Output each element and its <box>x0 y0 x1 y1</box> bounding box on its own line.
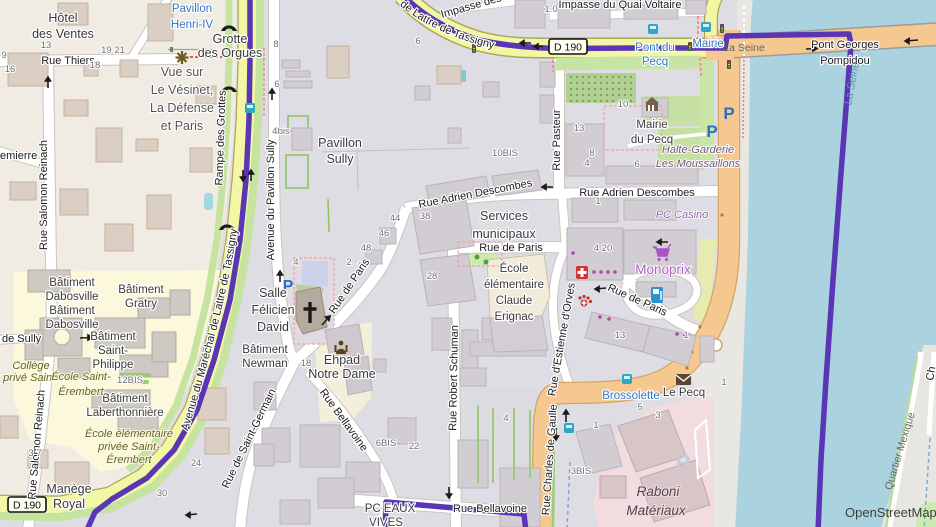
svg-text:D 190: D 190 <box>554 42 582 54</box>
svg-text:8: 8 <box>273 39 278 50</box>
svg-text:Philippe: Philippe <box>93 359 134 371</box>
svg-text:Rue Bellavoine: Rue Bellavoine <box>453 503 527 515</box>
svg-text:Services: Services <box>480 209 528 223</box>
svg-text:Bâtiment: Bâtiment <box>242 344 288 356</box>
svg-text:Notre Dame: Notre Dame <box>308 367 375 381</box>
svg-text:et Paris: et Paris <box>161 119 203 133</box>
svg-text:Laberthonnière: Laberthonnière <box>86 407 163 419</box>
svg-text:Ehpad: Ehpad <box>324 353 360 367</box>
svg-text:PC Casino: PC Casino <box>656 209 709 221</box>
svg-text:4: 4 <box>584 158 589 169</box>
svg-text:Collège: Collège <box>12 360 49 372</box>
svg-text:David: David <box>257 320 289 334</box>
svg-text:Le Pecq: Le Pecq <box>663 387 705 399</box>
svg-text:Rue Robert Schuman: Rue Robert Schuman <box>447 325 461 431</box>
svg-text:Claude: Claude <box>496 295 532 307</box>
svg-text:D 190: D 190 <box>13 500 41 512</box>
svg-text:de Sully: de Sully <box>2 333 42 345</box>
svg-text:Matériaux: Matériaux <box>626 503 687 518</box>
svg-text:Rue Pasteur: Rue Pasteur <box>551 109 563 170</box>
svg-text:38: 38 <box>420 211 431 222</box>
svg-text:VIVES: VIVES <box>369 517 403 527</box>
svg-text:Pavillon: Pavillon <box>172 3 212 15</box>
svg-text:13: 13 <box>574 123 585 134</box>
svg-text:46: 46 <box>379 228 390 239</box>
svg-text:Hôtel: Hôtel <box>48 11 77 25</box>
svg-text:Pont Georges: Pont Georges <box>811 39 879 51</box>
svg-text:10BIS: 10BIS <box>492 148 518 159</box>
svg-text:4: 4 <box>293 257 298 268</box>
svg-text:3BIS: 3BIS <box>571 466 592 477</box>
svg-text:Pecq: Pecq <box>642 56 668 68</box>
svg-text:4: 4 <box>503 413 508 424</box>
svg-text:1: 1 <box>683 330 688 341</box>
svg-text:8: 8 <box>589 148 594 159</box>
svg-text:Newman: Newman <box>242 358 287 370</box>
svg-text:Manège: Manège <box>46 482 91 496</box>
svg-text:Monoprix: Monoprix <box>635 262 691 277</box>
svg-text:Sully: Sully <box>326 152 354 166</box>
svg-text:4 20: 4 20 <box>594 243 613 254</box>
svg-text:des Ventes: des Ventes <box>32 27 94 41</box>
svg-text:Bâtiment: Bâtiment <box>102 393 148 405</box>
svg-text:Raboni: Raboni <box>637 484 681 499</box>
svg-text:6: 6 <box>634 159 639 170</box>
svg-text:10: 10 <box>618 99 629 110</box>
svg-text:École Saint-: École Saint- <box>51 370 111 383</box>
svg-text:Érembert: Érembert <box>106 453 152 466</box>
svg-text:Avenue du Pavillon Sully: Avenue du Pavillon Sully <box>265 139 277 260</box>
svg-text:18: 18 <box>301 358 312 369</box>
svg-text:Pavillon: Pavillon <box>318 136 362 150</box>
svg-text:1: 1 <box>593 420 598 431</box>
svg-text:Impasse du Quai Voltaire: Impasse du Quai Voltaire <box>559 0 682 11</box>
svg-text:Rue Thiers: Rue Thiers <box>41 55 95 67</box>
svg-text:Rue Salomon Reinach: Rue Salomon Reinach <box>38 140 50 250</box>
svg-text:1: 1 <box>595 196 600 207</box>
svg-text:13: 13 <box>615 330 626 341</box>
svg-text:44: 44 <box>390 213 401 224</box>
svg-text:Bâtiment: Bâtiment <box>118 284 164 296</box>
svg-text:La Seine: La Seine <box>723 42 765 54</box>
svg-text:Grotte: Grotte <box>213 32 248 46</box>
svg-text:12BIS: 12BIS <box>117 375 143 386</box>
svg-text:P: P <box>706 122 717 141</box>
svg-text:1: 1 <box>721 377 726 388</box>
svg-text:Gratry: Gratry <box>125 298 157 310</box>
svg-text:Ch: Ch <box>924 366 936 382</box>
svg-text:3: 3 <box>655 410 660 421</box>
svg-text:Brossolette: Brossolette <box>602 390 660 402</box>
svg-text:municipaux: municipaux <box>472 227 536 241</box>
svg-text:Royal: Royal <box>53 497 85 511</box>
svg-text:Dabosville: Dabosville <box>45 319 98 331</box>
svg-text:La Défense: La Défense <box>150 101 214 115</box>
svg-text:des Orgues: des Orgues <box>198 46 263 60</box>
svg-text:6: 6 <box>415 36 420 47</box>
svg-text:Les Moussaillons: Les Moussaillons <box>656 158 741 170</box>
svg-text:École: École <box>500 262 529 275</box>
svg-text:École élémentaire: École élémentaire <box>85 427 173 440</box>
svg-text:Erignac: Erignac <box>495 311 534 323</box>
svg-text:P: P <box>676 450 691 475</box>
svg-text:Le Vésinet,: Le Vésinet, <box>151 83 214 97</box>
svg-text:Dabosville: Dabosville <box>45 291 98 303</box>
svg-text:6BIS: 6BIS <box>376 438 397 449</box>
svg-text:6: 6 <box>274 79 279 90</box>
svg-text:Bâtiment: Bâtiment <box>90 331 136 343</box>
svg-text:Érembert: Érembert <box>58 385 104 398</box>
svg-text:13: 13 <box>41 40 52 51</box>
svg-text:P: P <box>723 104 734 123</box>
svg-text:Henri-IV: Henri-IV <box>171 19 214 31</box>
svg-text:18: 18 <box>90 60 101 71</box>
svg-text:OpenStreetMap: OpenStreetMap <box>845 505 936 520</box>
svg-text:emierre: emierre <box>0 150 37 162</box>
svg-text:19 21: 19 21 <box>101 45 125 56</box>
svg-text:2: 2 <box>346 257 351 268</box>
svg-text:Bâtiment: Bâtiment <box>49 305 95 317</box>
svg-text:9: 9 <box>1 50 6 61</box>
svg-text:4bis: 4bis <box>272 126 290 137</box>
svg-text:Rue de Paris: Rue de Paris <box>479 242 543 254</box>
svg-text:24: 24 <box>191 458 202 469</box>
svg-text:1.0: 1.0 <box>544 4 557 15</box>
svg-text:privée Saint-: privée Saint- <box>97 441 160 453</box>
svg-text:Saint-: Saint- <box>98 345 128 357</box>
svg-text:Pont du: Pont du <box>635 42 675 54</box>
svg-text:Bâtiment: Bâtiment <box>49 277 95 289</box>
svg-text:Pompidou: Pompidou <box>820 55 870 67</box>
svg-text:16: 16 <box>5 64 16 75</box>
svg-text:Halte-Garderie: Halte-Garderie <box>662 144 734 156</box>
svg-text:Vue sur: Vue sur <box>161 65 204 79</box>
svg-text:Salle: Salle <box>259 286 287 300</box>
svg-text:Mairie: Mairie <box>636 119 667 131</box>
svg-text:5: 5 <box>637 402 642 413</box>
svg-text:22: 22 <box>409 441 420 452</box>
svg-text:PC EAUX: PC EAUX <box>365 503 416 515</box>
svg-text:élémentaire: élémentaire <box>484 279 544 291</box>
svg-text:3 7: 3 7 <box>28 448 41 459</box>
svg-text:28: 28 <box>427 271 438 282</box>
svg-text:Mairie: Mairie <box>692 38 723 50</box>
svg-text:48: 48 <box>361 243 372 254</box>
svg-text:Félicien: Félicien <box>251 303 294 317</box>
svg-text:30: 30 <box>157 488 168 499</box>
